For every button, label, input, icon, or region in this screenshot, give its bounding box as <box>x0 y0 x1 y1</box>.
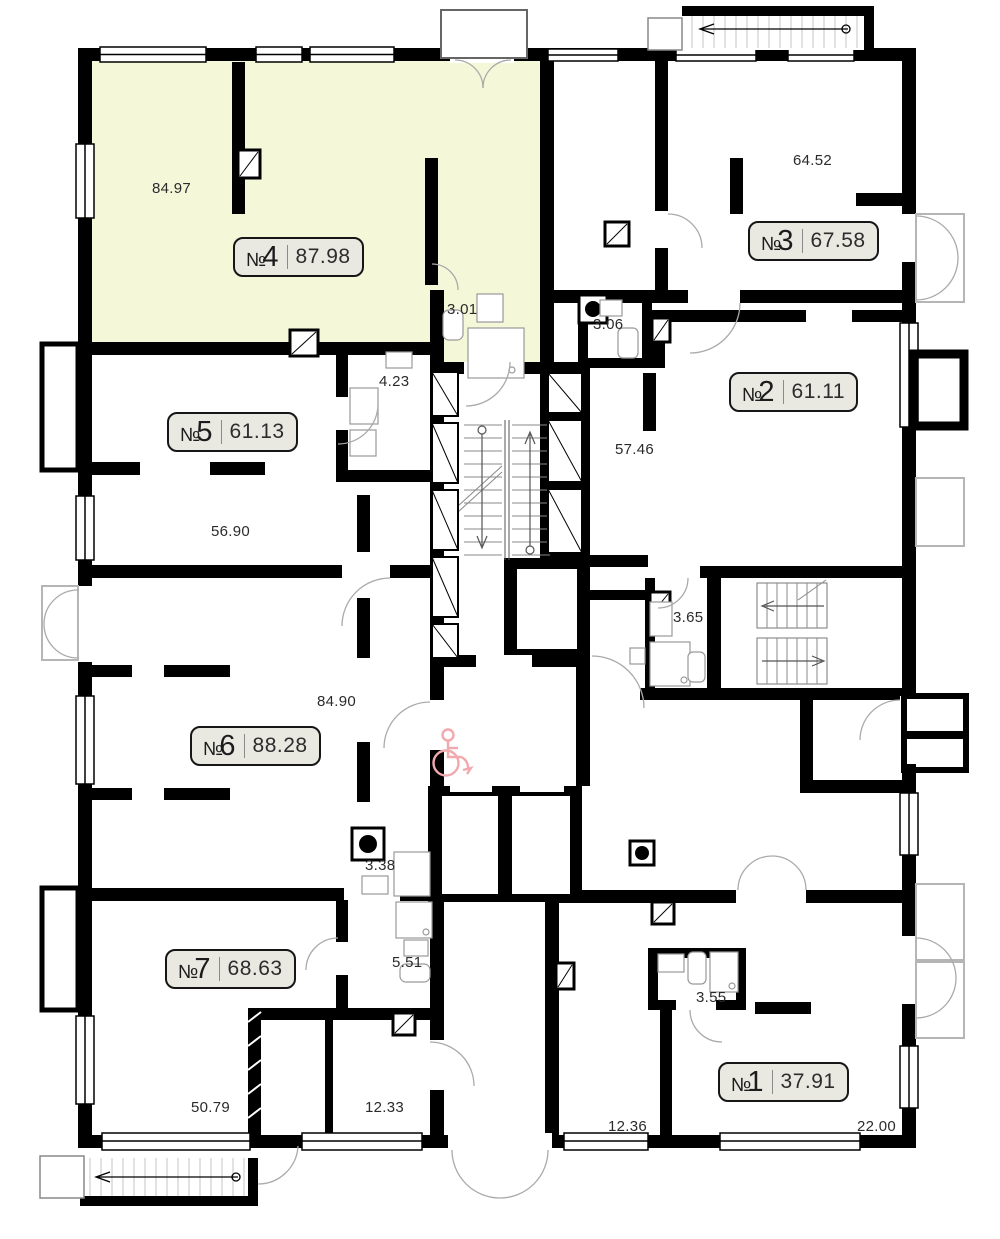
room-area-label: 12.36 <box>608 1118 647 1135</box>
badge-divider <box>287 245 288 269</box>
room-area-label: 4.23 <box>379 373 409 390</box>
apartment-number: №6 <box>203 730 236 763</box>
apartment-number: №7 <box>178 953 211 986</box>
apartment-area: 61.11 <box>792 380 846 404</box>
room-area-label: 12.33 <box>365 1099 404 1116</box>
room-area-label: 3.55 <box>696 989 726 1006</box>
room-area-label: 50.79 <box>191 1099 230 1116</box>
floor-plan: №4 87.98 №3 67.58 №2 61.11 №5 61.13 №6 8… <box>0 0 1000 1239</box>
stair-direction-arrow <box>762 601 824 666</box>
apartment-badge-7[interactable]: №7 68.63 <box>165 949 296 989</box>
badge-divider <box>219 957 220 981</box>
room-area-label: 64.52 <box>793 152 832 169</box>
apartment-area: 87.98 <box>296 245 351 269</box>
room-area-label: 56.90 <box>211 523 250 540</box>
apartment-badge-6[interactable]: №6 88.28 <box>190 726 321 766</box>
room-area-label: 3.01 <box>447 301 477 318</box>
room-area-label: 3.06 <box>593 316 623 333</box>
room-area-label: 84.97 <box>152 180 191 197</box>
apartment-number: №4 <box>246 241 279 274</box>
exterior-stair-bottom <box>40 1146 298 1206</box>
exterior-stair-top <box>648 6 874 50</box>
apartment-area: 68.63 <box>228 957 283 981</box>
room-area-label: 57.46 <box>615 441 654 458</box>
apartment-badge-4[interactable]: №4 87.98 <box>233 237 364 277</box>
room-area-label: 22.00 <box>857 1118 896 1135</box>
central-stairwell <box>447 420 550 560</box>
apartment-number: №2 <box>742 376 775 409</box>
apartment-4-highlight <box>85 55 547 372</box>
room-area-label: 3.65 <box>673 609 703 626</box>
badge-divider <box>772 1070 773 1094</box>
apartment-badge-2[interactable]: №2 61.11 <box>729 372 858 412</box>
room-area-label: 5.51 <box>392 954 422 971</box>
apartment-area: 88.28 <box>253 734 308 758</box>
badge-divider <box>802 229 803 253</box>
apartment-number: №5 <box>180 416 213 449</box>
apartment-number: №3 <box>761 225 794 258</box>
badge-divider <box>783 380 784 404</box>
apartment-number: №1 <box>731 1066 764 1099</box>
secondary-stair <box>757 580 827 684</box>
floor-plan-drawing <box>0 0 1000 1239</box>
apartment-badge-1[interactable]: №1 37.91 <box>718 1062 849 1102</box>
apartment-area: 37.91 <box>781 1070 836 1094</box>
room-area-label: 84.90 <box>317 693 356 710</box>
apartment-area: 67.58 <box>811 229 866 253</box>
room-area-label: 3.38 <box>365 857 395 874</box>
apartment-badge-3[interactable]: №3 67.58 <box>748 221 879 261</box>
badge-divider <box>221 420 222 444</box>
apartment-area: 61.13 <box>230 420 285 444</box>
badge-divider <box>244 734 245 758</box>
apartment-badge-5[interactable]: №5 61.13 <box>167 412 298 452</box>
